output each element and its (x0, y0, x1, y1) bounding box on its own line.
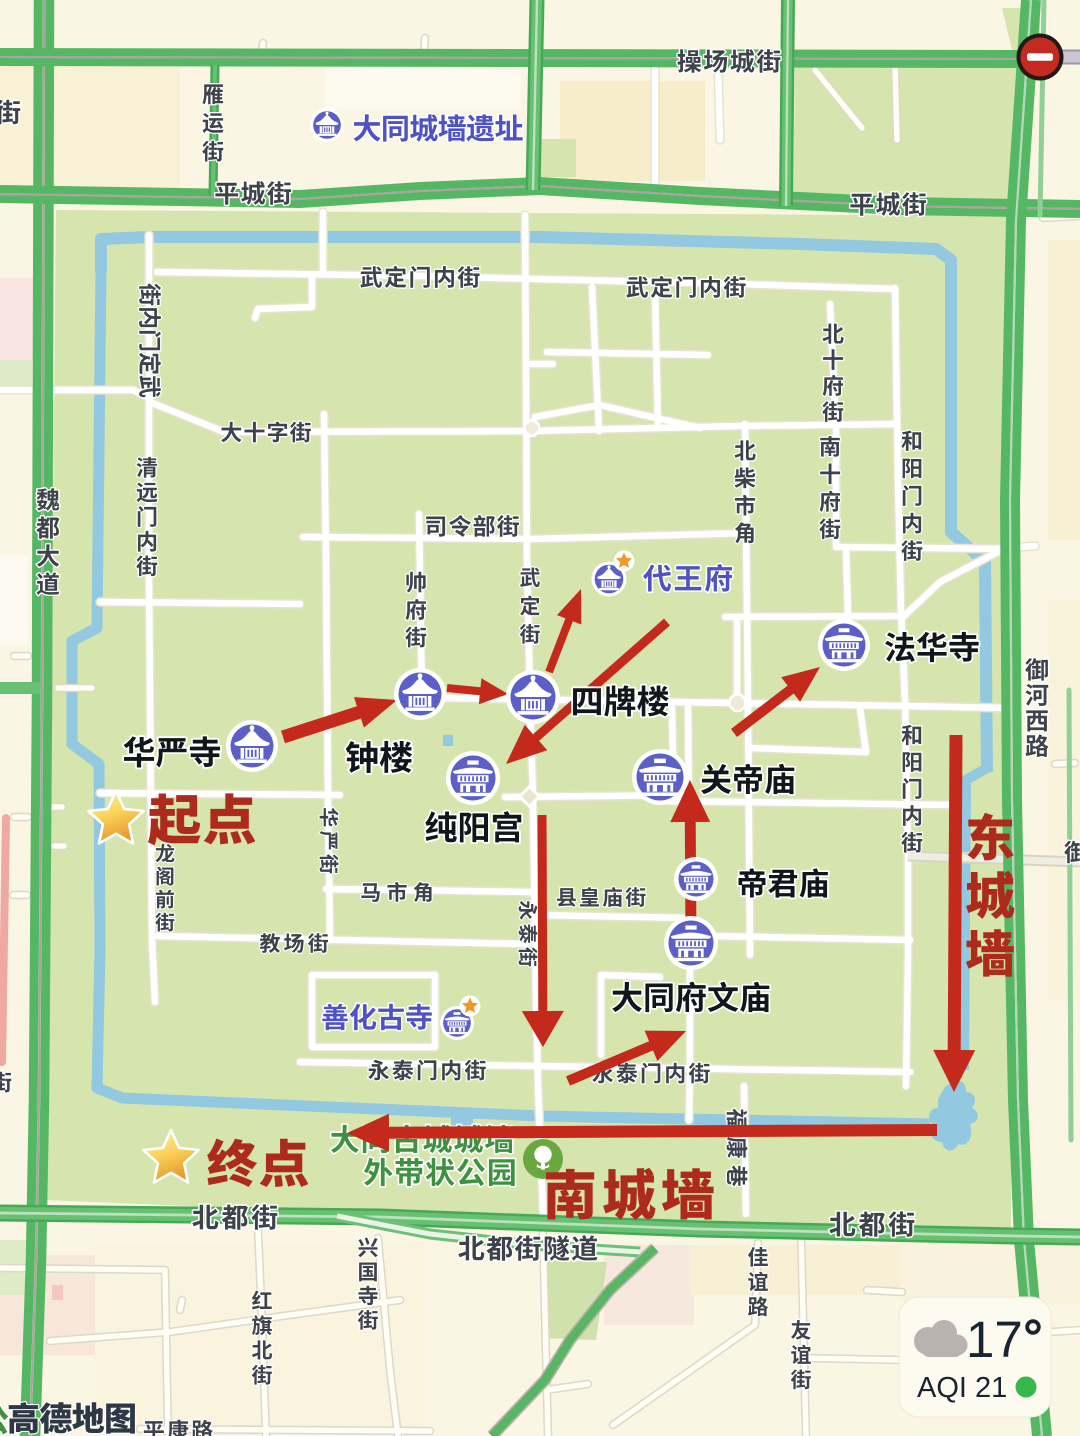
svg-text:AQI 21: AQI 21 (917, 1372, 1007, 1404)
svg-text:17: 17 (966, 1311, 1023, 1368)
